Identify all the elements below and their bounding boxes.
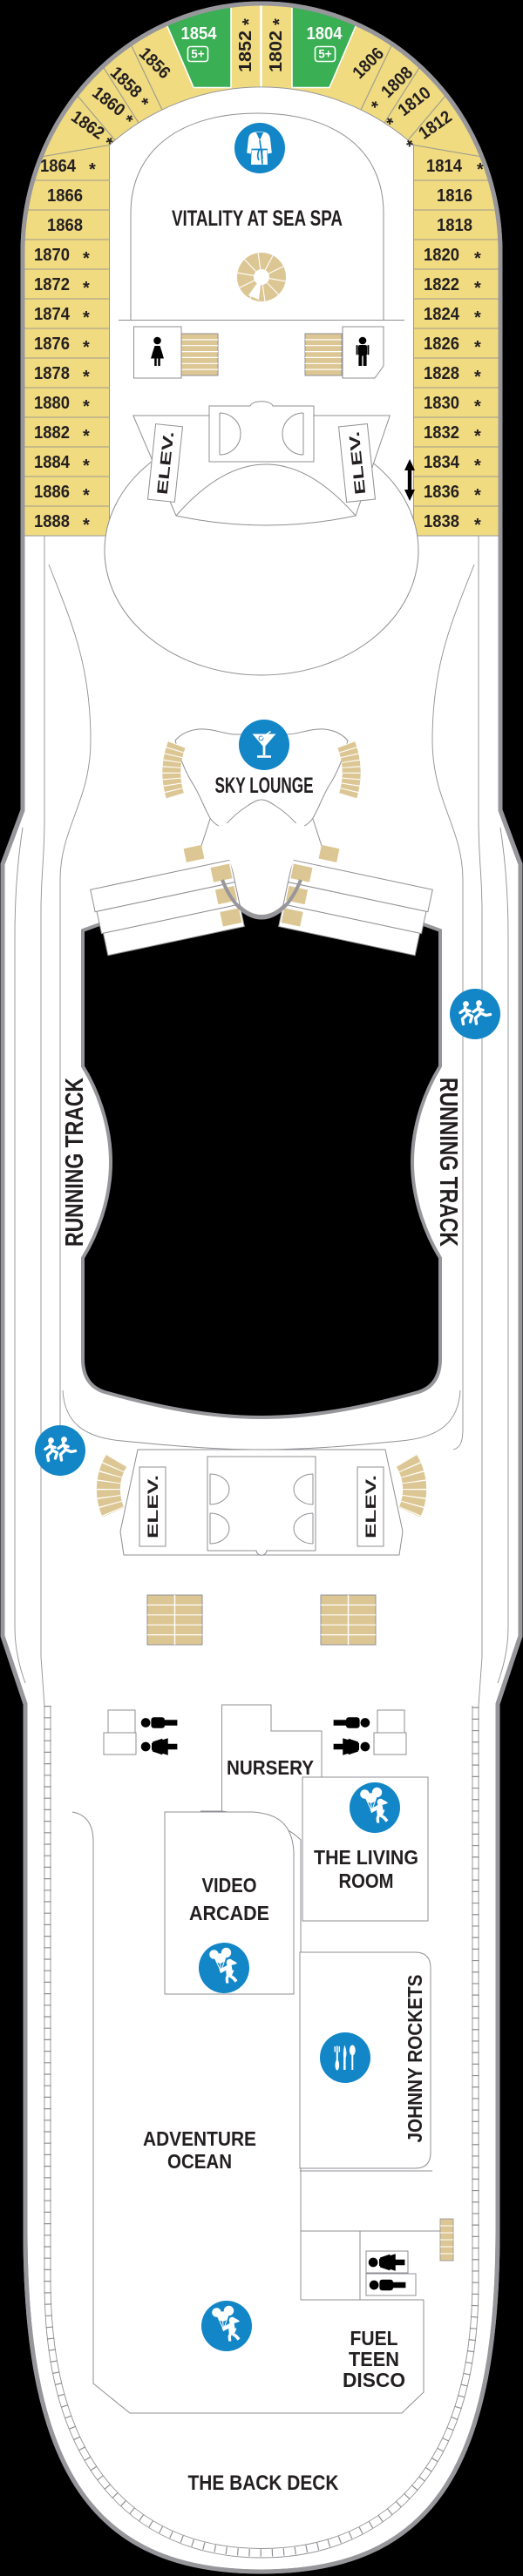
svg-text:1804: 1804 bbox=[307, 24, 343, 44]
svg-text:DISCO: DISCO bbox=[343, 2369, 405, 2391]
svg-text:*: * bbox=[474, 279, 481, 298]
svg-text:1868: 1868 bbox=[47, 216, 83, 235]
svg-text:*: * bbox=[83, 456, 90, 476]
svg-text:*: * bbox=[83, 427, 90, 446]
svg-text:1824: 1824 bbox=[424, 305, 460, 324]
svg-text:1830: 1830 bbox=[424, 394, 459, 413]
svg-text:*: * bbox=[83, 338, 90, 357]
svg-text:*: * bbox=[83, 249, 90, 268]
svg-text:1864: 1864 bbox=[40, 157, 77, 176]
svg-text:RUNNING TRACK: RUNNING TRACK bbox=[61, 1078, 89, 1247]
svg-text:*: * bbox=[474, 516, 481, 535]
svg-text:ELEV.: ELEV. bbox=[145, 1475, 161, 1538]
svg-text:1814: 1814 bbox=[426, 157, 463, 176]
svg-text:*: * bbox=[474, 338, 481, 357]
svg-text:*: * bbox=[83, 516, 90, 535]
svg-text:1882: 1882 bbox=[34, 423, 70, 443]
svg-text:1818: 1818 bbox=[437, 216, 472, 235]
svg-text:1822: 1822 bbox=[424, 275, 459, 294]
svg-text:*: * bbox=[474, 427, 481, 446]
svg-text:1876: 1876 bbox=[34, 335, 70, 354]
svg-text:VITALITY AT SEA SPA: VITALITY AT SEA SPA bbox=[172, 206, 343, 231]
svg-text:1866: 1866 bbox=[47, 186, 83, 206]
svg-text:*: * bbox=[83, 368, 90, 387]
svg-text:1816: 1816 bbox=[437, 186, 472, 206]
svg-text:JOHNNY ROCKETS: JOHNNY ROCKETS bbox=[404, 1975, 426, 2143]
svg-text:1854: 1854 bbox=[181, 24, 218, 44]
svg-text:5+: 5+ bbox=[318, 48, 332, 61]
svg-text:1820: 1820 bbox=[424, 246, 459, 265]
svg-text:*: * bbox=[89, 160, 96, 179]
svg-text:FUEL: FUEL bbox=[350, 2327, 398, 2350]
svg-text:OCEAN: OCEAN bbox=[167, 2150, 232, 2173]
svg-text:*: * bbox=[474, 456, 481, 476]
svg-text:1870: 1870 bbox=[34, 246, 70, 265]
svg-text:*: * bbox=[83, 308, 90, 328]
svg-text:1888: 1888 bbox=[34, 512, 70, 531]
svg-text:*: * bbox=[474, 397, 481, 416]
svg-text:RUNNING TRACK: RUNNING TRACK bbox=[434, 1078, 462, 1247]
svg-text:5+: 5+ bbox=[191, 48, 205, 61]
svg-text:1872: 1872 bbox=[34, 275, 70, 294]
svg-text:*: * bbox=[474, 368, 481, 387]
svg-text:THE BACK DECK: THE BACK DECK bbox=[188, 2471, 340, 2495]
svg-text:*: * bbox=[270, 18, 289, 25]
svg-text:1834: 1834 bbox=[424, 453, 460, 472]
svg-text:1828: 1828 bbox=[424, 364, 459, 383]
svg-text:1880: 1880 bbox=[34, 394, 70, 413]
svg-text:1878: 1878 bbox=[34, 364, 70, 383]
svg-text:1852: 1852 bbox=[236, 30, 255, 72]
svg-text:ADVENTURE: ADVENTURE bbox=[143, 2127, 256, 2150]
svg-text:ARCADE: ARCADE bbox=[189, 1902, 269, 1924]
svg-text:1838: 1838 bbox=[424, 512, 459, 531]
svg-text:1884: 1884 bbox=[34, 453, 71, 472]
svg-text:VIDEO: VIDEO bbox=[202, 1874, 257, 1897]
svg-text:*: * bbox=[83, 397, 90, 416]
svg-text:*: * bbox=[83, 486, 90, 505]
svg-text:1802: 1802 bbox=[267, 30, 286, 72]
svg-text:1832: 1832 bbox=[424, 423, 459, 443]
svg-text:ROOM: ROOM bbox=[339, 1869, 394, 1892]
svg-text:1826: 1826 bbox=[424, 335, 459, 354]
svg-text:SKY LOUNGE: SKY LOUNGE bbox=[215, 774, 314, 798]
svg-text:ELEV.: ELEV. bbox=[363, 1475, 379, 1538]
svg-text:1874: 1874 bbox=[34, 305, 71, 324]
svg-text:*: * bbox=[474, 486, 481, 505]
svg-text:*: * bbox=[83, 279, 90, 298]
svg-text:NURSERY: NURSERY bbox=[227, 1756, 314, 1779]
svg-text:1886: 1886 bbox=[34, 483, 70, 502]
svg-text:*: * bbox=[474, 249, 481, 268]
svg-text:*: * bbox=[474, 308, 481, 328]
svg-text:1836: 1836 bbox=[424, 483, 459, 502]
svg-text:*: * bbox=[240, 18, 259, 25]
svg-text:THE LIVING: THE LIVING bbox=[314, 1846, 418, 1869]
svg-text:TEEN: TEEN bbox=[349, 2348, 399, 2370]
